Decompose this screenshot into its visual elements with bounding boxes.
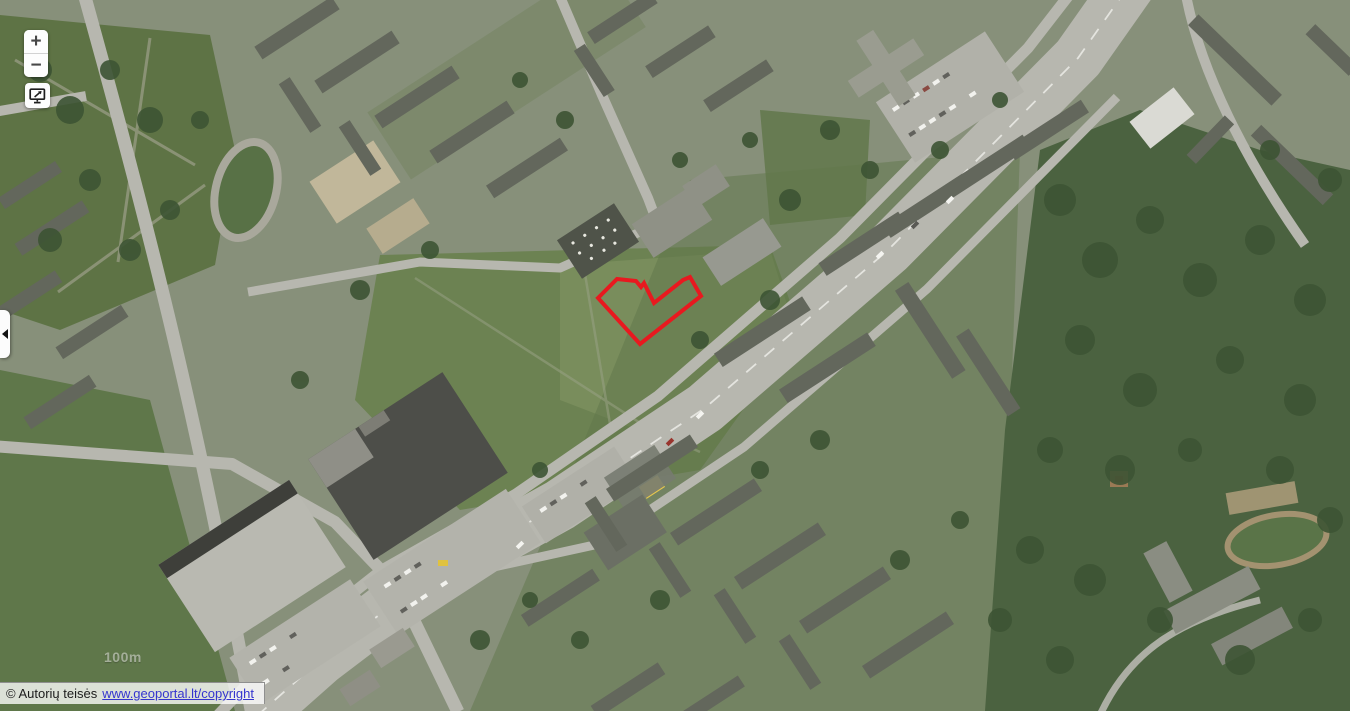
zoom-controls: + − [24, 30, 48, 77]
full-extent-button[interactable] [25, 83, 50, 108]
monitor-extent-icon [29, 88, 46, 104]
attribution-text: © Autorių teisės [6, 686, 97, 701]
collapse-left-triangle-icon [2, 329, 8, 339]
zoom-in-button[interactable]: + [24, 30, 48, 53]
zoom-out-button[interactable]: − [24, 53, 48, 77]
copyright-link[interactable]: www.geoportal.lt/copyright [102, 686, 254, 701]
satellite-imagery [0, 0, 1350, 711]
minus-icon: − [30, 56, 41, 75]
collapse-panel-tab[interactable] [0, 310, 10, 358]
plus-icon: + [30, 32, 41, 51]
map-viewer: + − 100m © Autorių teisės www.geoportal.… [0, 0, 1350, 711]
map-canvas[interactable] [0, 0, 1350, 711]
scale-label: 100m [104, 649, 142, 665]
attribution-bar: © Autorių teisės www.geoportal.lt/copyri… [0, 682, 265, 704]
